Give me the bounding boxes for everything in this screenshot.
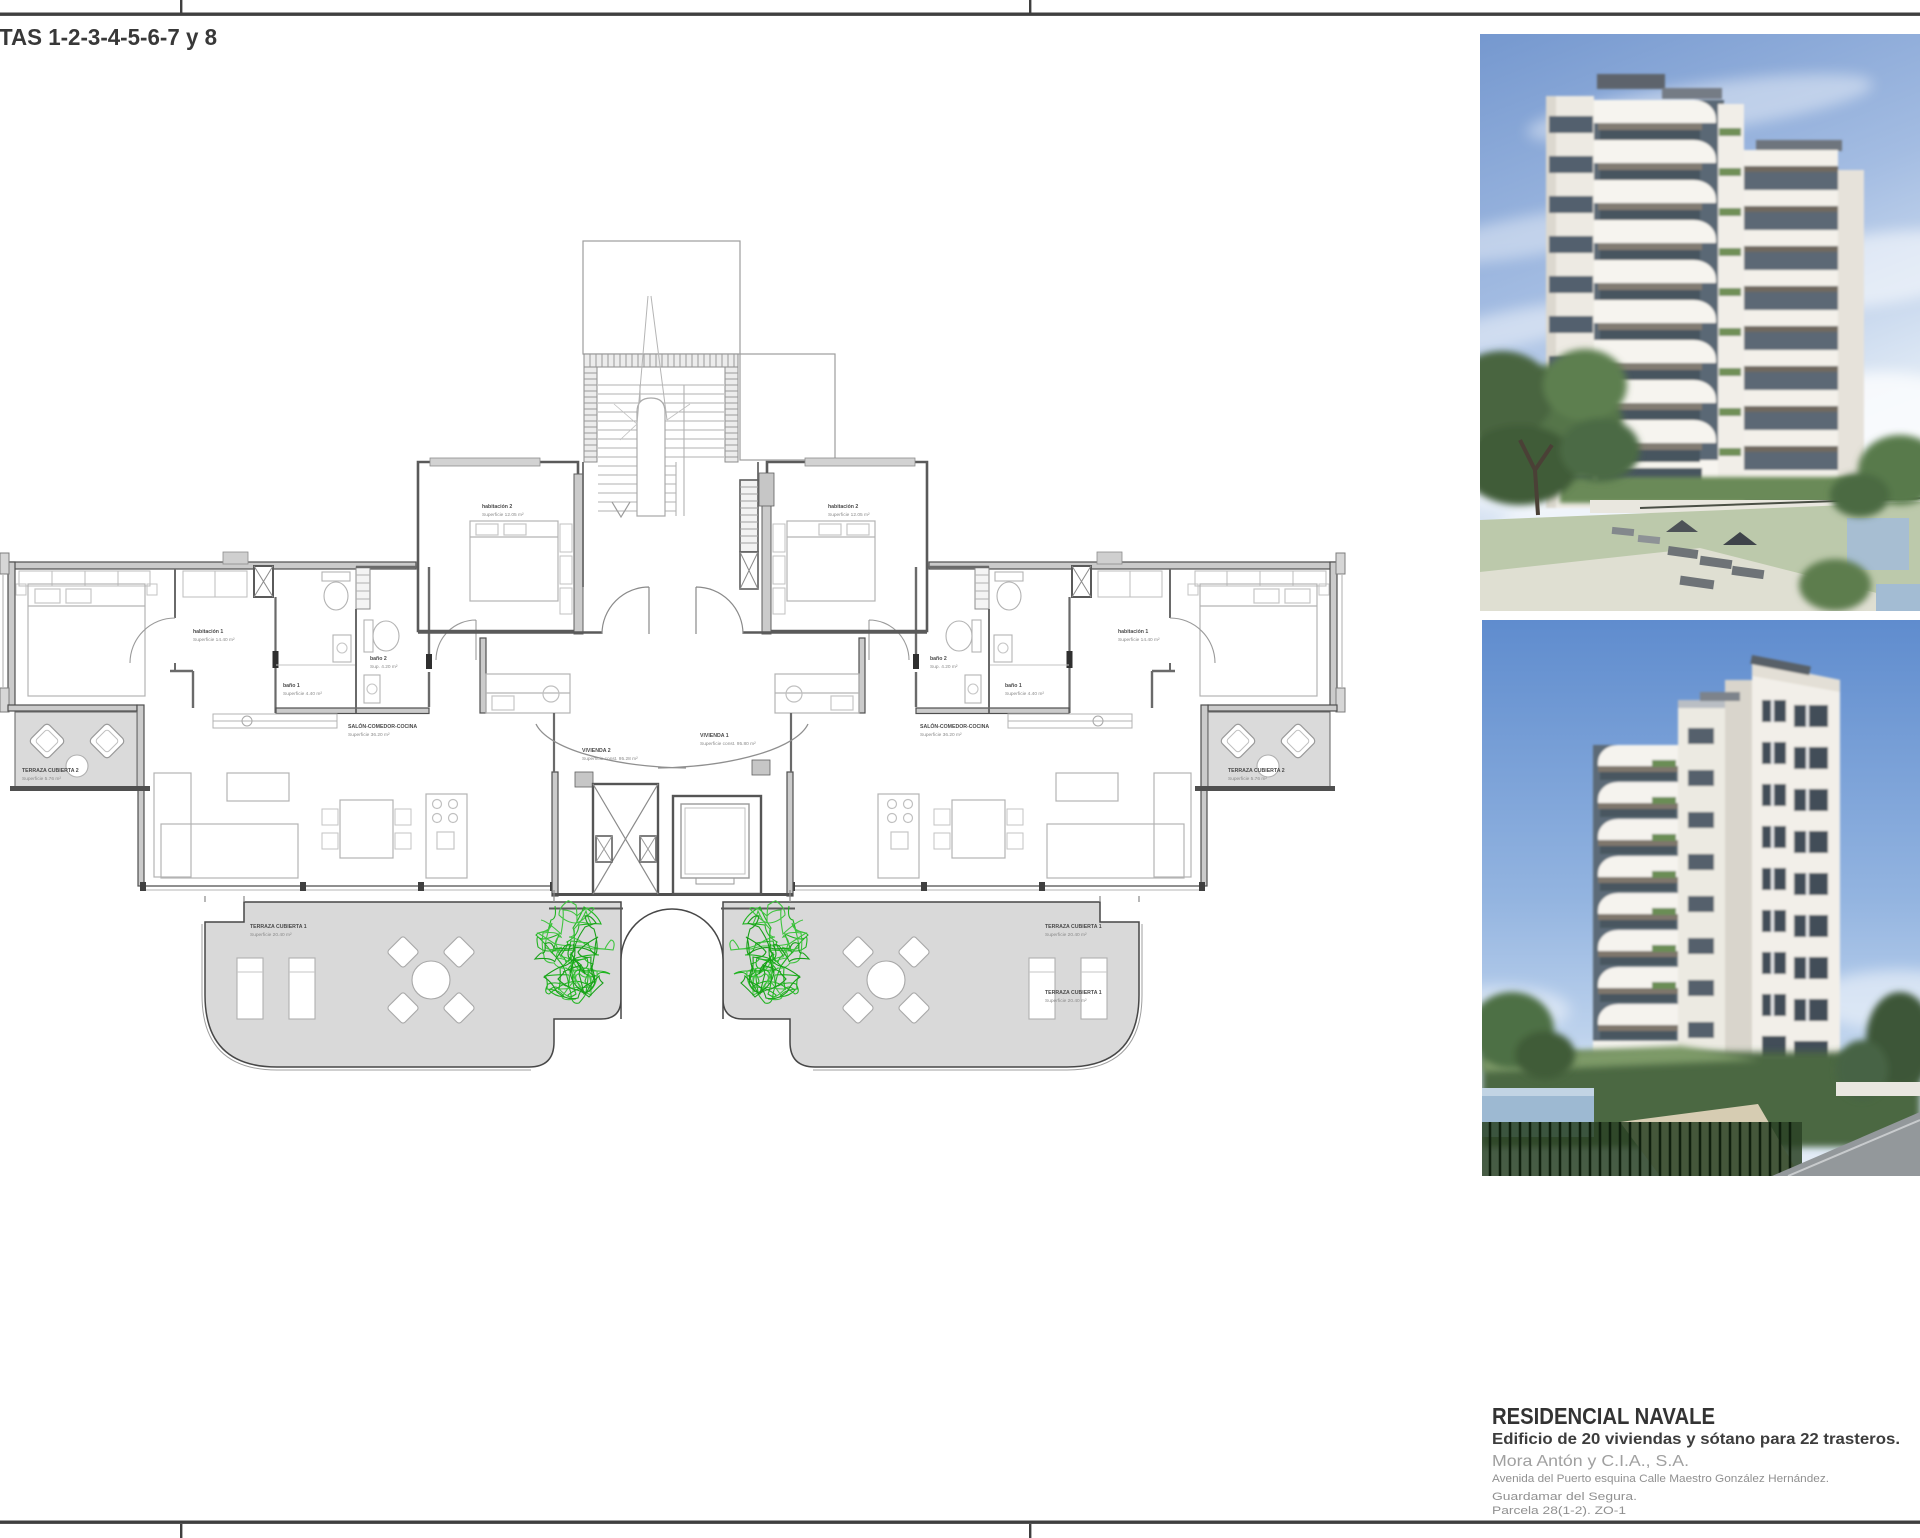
svg-text:Superficie 14.40 m²: Superficie 14.40 m²: [1118, 637, 1160, 643]
svg-text:habitación 2: habitación 2: [482, 504, 512, 510]
svg-text:Superficie 20.40 m²: Superficie 20.40 m²: [1045, 932, 1087, 938]
svg-text:VIVIENDA 2: VIVIENDA 2: [582, 748, 611, 754]
svg-text:Superficie const. 95.80 m²: Superficie const. 95.80 m²: [700, 741, 756, 747]
svg-text:TERRAZA CUBIERTA 1: TERRAZA CUBIERTA 1: [1045, 990, 1102, 996]
svg-text:RESIDENCIAL NAVALE: RESIDENCIAL NAVALE: [1492, 1403, 1715, 1429]
svg-text:Superficie 14.40 m²: Superficie 14.40 m²: [193, 637, 235, 643]
svg-text:Sup. 4.20 m²: Sup. 4.20 m²: [370, 664, 398, 670]
svg-text:Superficie 4.40 m²: Superficie 4.40 m²: [283, 691, 322, 697]
svg-text:Superficie 20.40 m²: Superficie 20.40 m²: [250, 932, 292, 938]
svg-text:Guardamar del Segura.: Guardamar del Segura.: [1492, 1491, 1637, 1503]
svg-text:TERRAZA CUBIERTA 2: TERRAZA CUBIERTA 2: [1228, 768, 1285, 774]
svg-text:baño 2: baño 2: [370, 656, 387, 662]
svg-text:habitación 1: habitación 1: [1118, 629, 1148, 635]
svg-text:SALÓN-COMEDOR-COCINA: SALÓN-COMEDOR-COCINA: [920, 722, 989, 730]
svg-text:Edificio de 20 viviendas y sót: Edificio de 20 viviendas y sótano para 2…: [1492, 1431, 1900, 1448]
svg-text:Superficie 12.05 m²: Superficie 12.05 m²: [828, 512, 870, 518]
svg-text:Superficie 5.76 m²: Superficie 5.76 m²: [22, 776, 61, 782]
svg-text:habitación 1: habitación 1: [193, 629, 223, 635]
svg-text:TERRAZA CUBIERTA 2: TERRAZA CUBIERTA 2: [22, 768, 79, 774]
svg-text:VIVIENDA 1: VIVIENDA 1: [700, 733, 729, 739]
svg-text:Superficie 36.20 m²: Superficie 36.20 m²: [920, 732, 962, 738]
svg-text:Superficie 4.40 m²: Superficie 4.40 m²: [1005, 691, 1044, 697]
svg-text:TAS 1-2-3-4-5-6-7 y 8: TAS 1-2-3-4-5-6-7 y 8: [0, 24, 217, 50]
svg-text:TERRAZA CUBIERTA 1: TERRAZA CUBIERTA 1: [1045, 924, 1102, 930]
svg-text:Superficie 12.05 m²: Superficie 12.05 m²: [482, 512, 524, 518]
svg-text:Sup. 4.20 m²: Sup. 4.20 m²: [930, 664, 958, 670]
svg-text:Avenida del Puerto esquina Cal: Avenida del Puerto esquina Calle Maestro…: [1492, 1473, 1829, 1485]
svg-text:baño 1: baño 1: [283, 683, 300, 689]
svg-text:Superficie 36.20 m²: Superficie 36.20 m²: [348, 732, 390, 738]
svg-text:Superficie 5.76 m²: Superficie 5.76 m²: [1228, 776, 1267, 782]
svg-text:baño 2: baño 2: [930, 656, 947, 662]
svg-text:TERRAZA CUBIERTA 1: TERRAZA CUBIERTA 1: [250, 924, 307, 930]
svg-text:Parcela 28(1-2). ZO-1: Parcela 28(1-2). ZO-1: [1492, 1505, 1626, 1517]
svg-text:SALÓN-COMEDOR-COCINA: SALÓN-COMEDOR-COCINA: [348, 722, 417, 730]
svg-text:Mora Antón y C.I.A., S.A.: Mora Antón y C.I.A., S.A.: [1492, 1453, 1689, 1470]
svg-text:habitación 2: habitación 2: [828, 504, 858, 510]
svg-text:Superficie const. 95.28 m²: Superficie const. 95.28 m²: [582, 756, 638, 762]
svg-text:Superficie 20.40 m²: Superficie 20.40 m²: [1045, 998, 1087, 1004]
svg-text:baño 1: baño 1: [1005, 683, 1022, 689]
